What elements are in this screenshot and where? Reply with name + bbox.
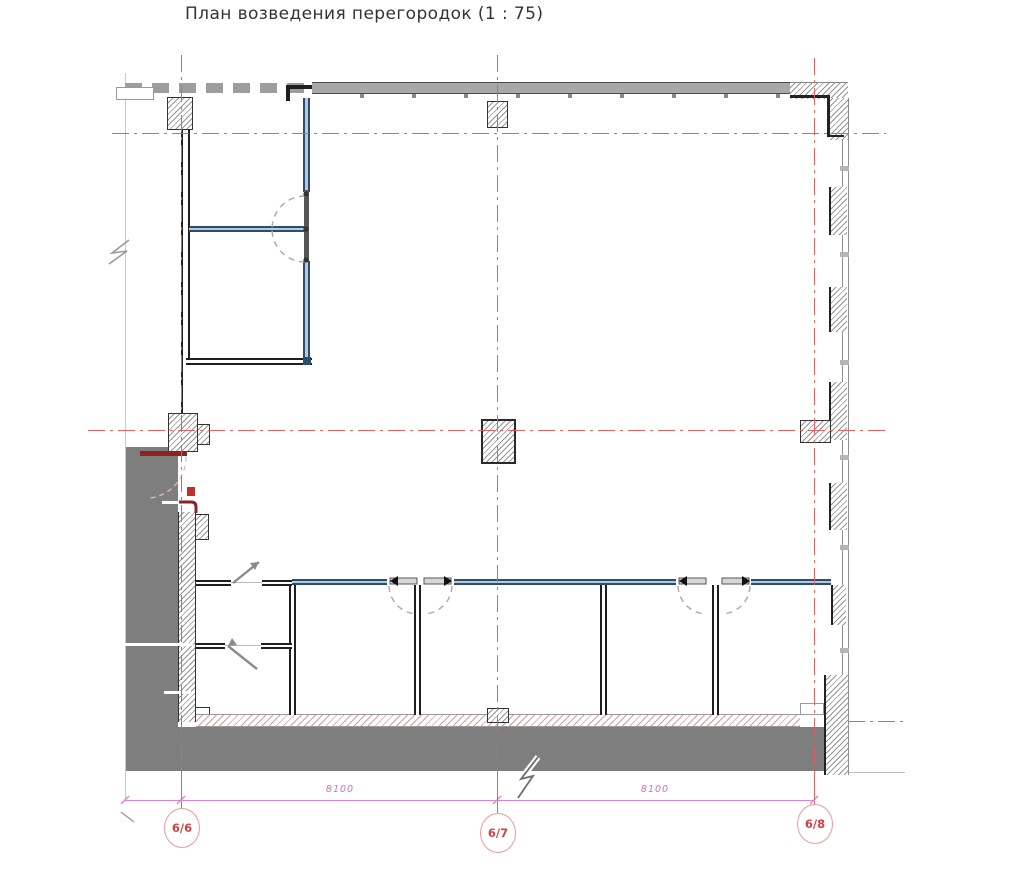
axis-line-6-7 [497, 55, 498, 812]
door-hinge-dot-1 [303, 191, 308, 196]
axis-line-h-middle [88, 430, 886, 431]
axis-ext-6-6 [181, 770, 182, 808]
door-leaf-small-mid-tip [228, 638, 237, 646]
door-swing-2a [678, 586, 706, 614]
axis-line-h-upper [112, 133, 886, 134]
bubble-label-6-6: 6/6 [172, 821, 192, 835]
dimension-label-right: 8100 [625, 784, 685, 795]
door-leaf-small-mid [228, 646, 257, 669]
floor-plan: План возведения перегородок (1 : 75) [0, 0, 1024, 872]
dimension-label-left: 8100 [310, 784, 370, 795]
grid-bubble-6-8: 6/8 [797, 804, 833, 844]
door-swing-2b [722, 586, 750, 614]
door-hinge-dot-2 [303, 226, 308, 231]
door-swing-upper-2 [272, 229, 305, 262]
axis-line-6-8 [814, 58, 815, 804]
axis-ext-6-8 [814, 770, 815, 804]
symbol-overlay [0, 0, 1024, 872]
axis-ext-6-7 [497, 770, 498, 813]
axis-line-h-lower-stub [848, 721, 903, 722]
entry-red-marker [187, 487, 195, 496]
dimension-line [125, 800, 815, 801]
grid-bubble-6-7: 6/7 [480, 813, 516, 853]
door-hinge-dot-3 [303, 257, 308, 262]
entry-door-leaf [140, 451, 187, 456]
door-swing-upper-1 [272, 196, 305, 229]
door-swing-1a [389, 586, 417, 614]
bubble-label-6-8: 6/8 [805, 817, 825, 831]
axis-line-6-6 [181, 55, 182, 807]
grid-bubble-6-6: 6/6 [164, 808, 200, 848]
bubble-label-6-7: 6/7 [488, 826, 508, 840]
break-symbol-left [109, 240, 129, 264]
tick-mark-bl [121, 812, 134, 822]
door-swing-1b [424, 586, 452, 614]
